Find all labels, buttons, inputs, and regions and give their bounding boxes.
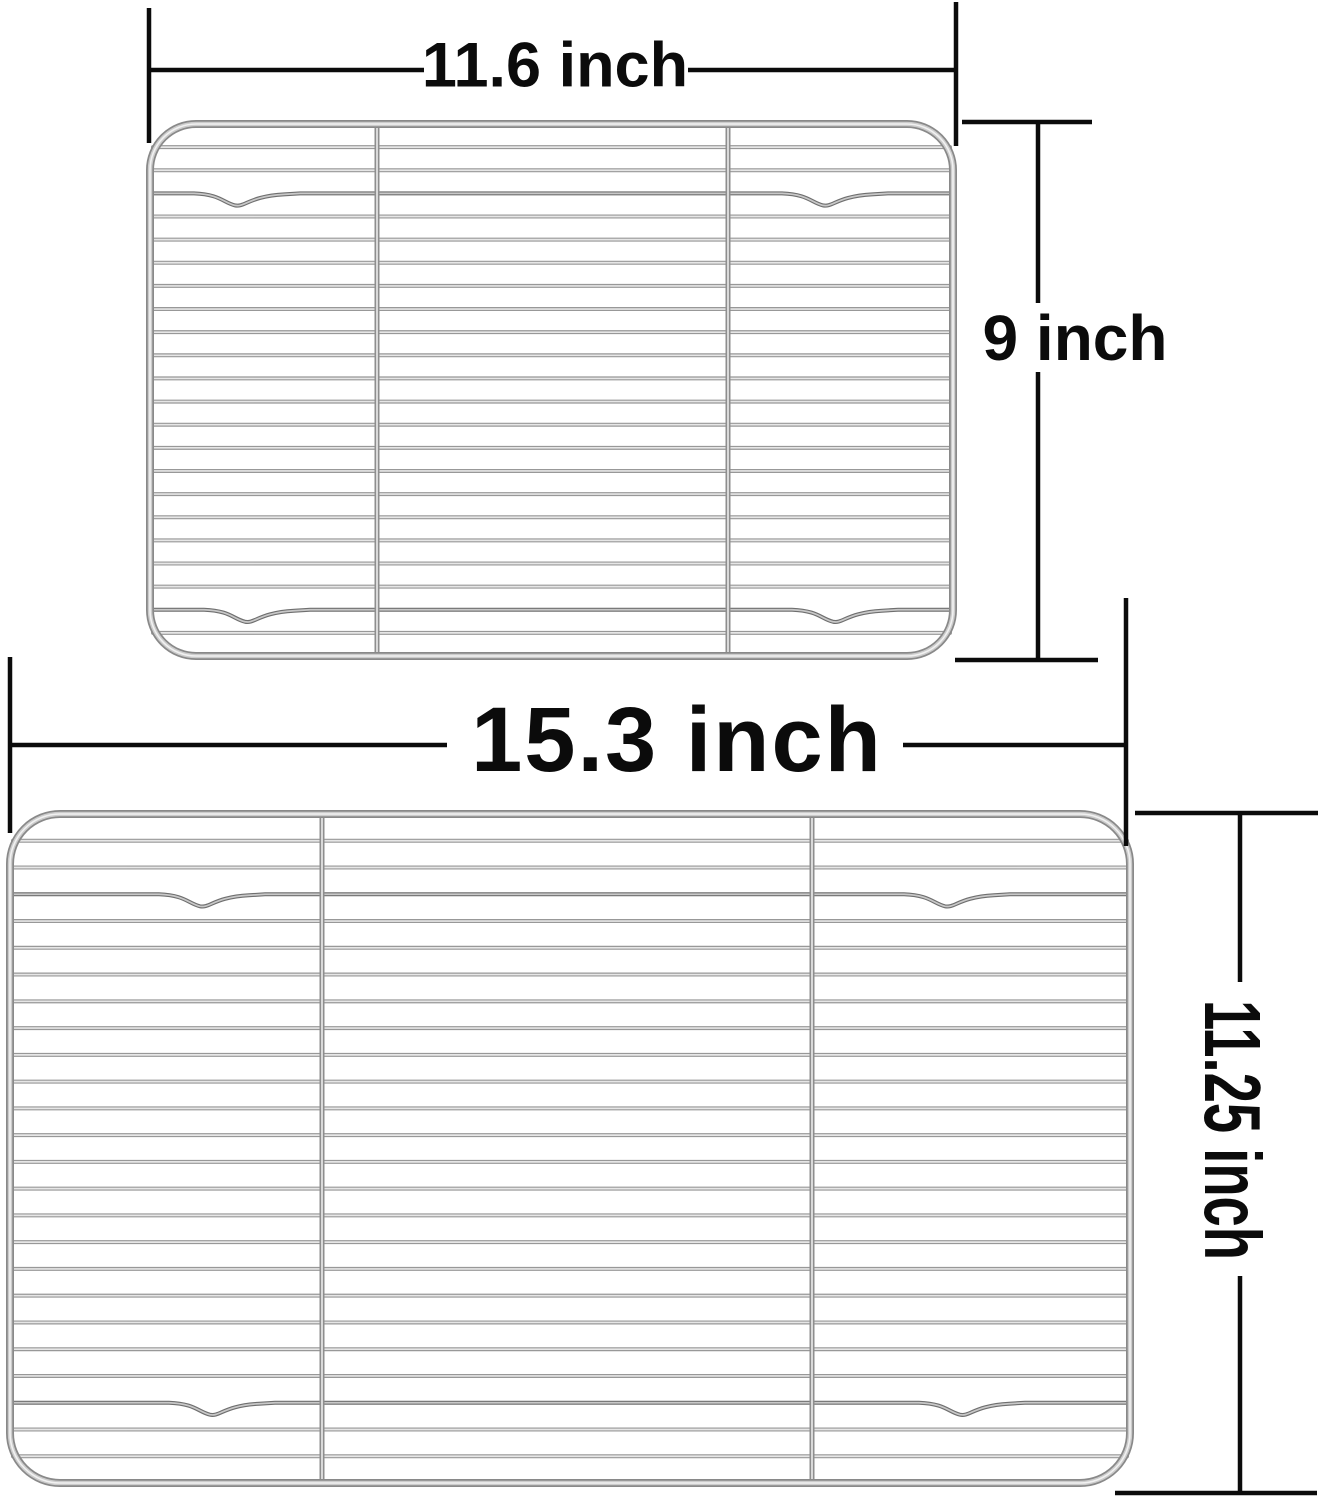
dim-label-small-rack-width: 11.6 inch [422, 35, 688, 98]
dim-label-large-rack-height: 11.25 inch [1192, 1000, 1272, 1260]
dim-label-large-rack-width: 15.3 inch [471, 694, 883, 786]
product-dimension-diagram: 11.6 inch 9 inch 15.3 inch 11.25 inch [0, 0, 1320, 1500]
dim-label-small-rack-height: 9 inch [983, 306, 1168, 370]
